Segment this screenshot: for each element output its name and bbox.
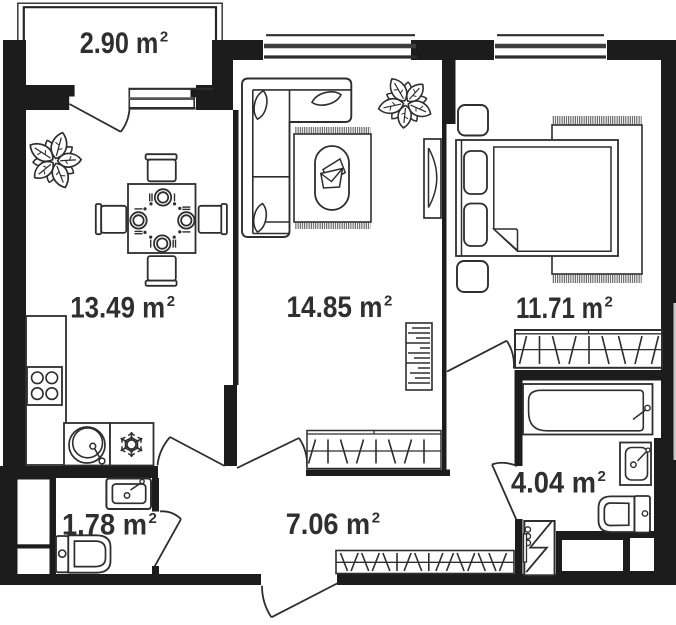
svg-text:2.90 m: 2.90 m xyxy=(80,27,159,60)
svg-text:4.04 m: 4.04 m xyxy=(511,467,596,500)
svg-text:2: 2 xyxy=(160,29,168,46)
svg-text:14.85 m: 14.85 m xyxy=(287,291,383,324)
svg-text:2: 2 xyxy=(149,510,157,527)
svg-text:2: 2 xyxy=(372,510,380,527)
svg-text:2: 2 xyxy=(167,293,175,310)
svg-text:11.71 m: 11.71 m xyxy=(516,292,603,325)
svg-text:2: 2 xyxy=(598,468,606,485)
svg-text:13.49 m: 13.49 m xyxy=(70,292,165,325)
svg-text:2: 2 xyxy=(384,293,392,310)
svg-text:7.06 m: 7.06 m xyxy=(286,508,371,541)
svg-text:1.78 m: 1.78 m xyxy=(62,509,147,542)
svg-text:2: 2 xyxy=(605,294,613,311)
